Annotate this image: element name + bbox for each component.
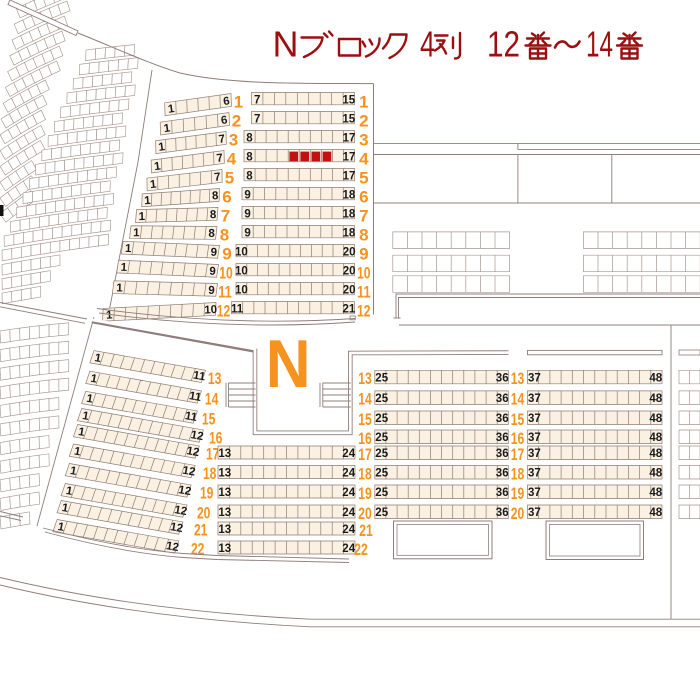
svg-text:1: 1 <box>359 93 368 112</box>
svg-text:36: 36 <box>496 448 509 460</box>
svg-text:12: 12 <box>357 302 371 321</box>
svg-text:13: 13 <box>218 524 231 536</box>
svg-text:14: 14 <box>205 389 219 408</box>
svg-text:17: 17 <box>358 445 372 464</box>
svg-text:18: 18 <box>358 464 372 483</box>
svg-text:17: 17 <box>343 151 356 163</box>
svg-text:8: 8 <box>246 170 253 182</box>
svg-text:15: 15 <box>202 410 216 429</box>
svg-text:6: 6 <box>359 188 368 207</box>
svg-text:11: 11 <box>218 283 232 302</box>
svg-text:21: 21 <box>359 521 373 540</box>
svg-text:9: 9 <box>244 189 250 201</box>
svg-text:N: N <box>266 325 311 401</box>
svg-text:5: 5 <box>359 169 368 188</box>
svg-text:8: 8 <box>246 132 253 144</box>
svg-text:1: 1 <box>116 282 123 294</box>
svg-text:10: 10 <box>219 264 233 283</box>
svg-text:17: 17 <box>343 132 356 144</box>
svg-text:9: 9 <box>359 245 368 264</box>
svg-text:48: 48 <box>649 393 662 405</box>
svg-text:25: 25 <box>375 432 388 444</box>
svg-text:10: 10 <box>235 246 248 258</box>
svg-text:2: 2 <box>232 112 241 131</box>
svg-text:36: 36 <box>496 432 509 444</box>
svg-text:12: 12 <box>182 465 197 479</box>
svg-text:24: 24 <box>342 448 355 460</box>
svg-text:12: 12 <box>190 429 205 443</box>
svg-text:12: 12 <box>169 521 184 535</box>
svg-text:36: 36 <box>496 487 509 499</box>
svg-text:48: 48 <box>649 372 662 384</box>
svg-text:20: 20 <box>343 246 356 258</box>
svg-text:18: 18 <box>343 208 356 220</box>
svg-text:15: 15 <box>342 94 355 106</box>
svg-text:13: 13 <box>358 369 372 388</box>
svg-text:20: 20 <box>343 265 356 277</box>
svg-text:4: 4 <box>359 150 369 169</box>
svg-text:8: 8 <box>246 151 253 163</box>
svg-text:19: 19 <box>511 484 525 503</box>
svg-text:12: 12 <box>177 484 192 498</box>
svg-text:8: 8 <box>210 209 217 221</box>
svg-text:25: 25 <box>375 393 388 405</box>
svg-text:37: 37 <box>528 372 541 384</box>
svg-text:1: 1 <box>138 211 145 223</box>
svg-text:15: 15 <box>342 113 355 125</box>
svg-text:15: 15 <box>511 410 525 429</box>
svg-text:48: 48 <box>649 468 662 480</box>
svg-text:12: 12 <box>186 445 201 459</box>
svg-text:14: 14 <box>586 24 613 65</box>
svg-text:17: 17 <box>343 170 356 182</box>
svg-text:9: 9 <box>209 266 216 278</box>
svg-text:13: 13 <box>208 369 222 388</box>
svg-text:11: 11 <box>357 283 371 302</box>
svg-text:25: 25 <box>375 487 388 499</box>
svg-text:8: 8 <box>359 226 368 245</box>
svg-text:12: 12 <box>173 504 188 518</box>
svg-text:37: 37 <box>528 432 541 444</box>
svg-text:18: 18 <box>511 464 525 483</box>
svg-text:10: 10 <box>235 265 248 277</box>
svg-text:1: 1 <box>120 262 128 274</box>
svg-text:22: 22 <box>191 540 205 559</box>
svg-text:13: 13 <box>511 369 525 388</box>
svg-text:7: 7 <box>214 171 222 184</box>
svg-text:4: 4 <box>227 150 237 169</box>
svg-text:8: 8 <box>220 226 229 245</box>
svg-text:7: 7 <box>359 207 368 226</box>
svg-text:37: 37 <box>528 393 541 405</box>
svg-text:7: 7 <box>254 113 260 125</box>
svg-text:10: 10 <box>357 264 371 283</box>
svg-text:1: 1 <box>234 93 243 112</box>
svg-text:36: 36 <box>496 507 509 519</box>
svg-text:17: 17 <box>511 445 525 464</box>
svg-text:24: 24 <box>342 487 355 499</box>
svg-text:14: 14 <box>358 390 372 409</box>
svg-text:48: 48 <box>649 413 662 425</box>
svg-text:24: 24 <box>342 468 355 480</box>
svg-text:15: 15 <box>358 410 372 429</box>
svg-text:24: 24 <box>342 507 355 519</box>
svg-text:9: 9 <box>244 208 250 220</box>
svg-text:11: 11 <box>231 303 244 315</box>
svg-text:21: 21 <box>194 521 208 540</box>
svg-text:13: 13 <box>218 468 231 480</box>
svg-text:9: 9 <box>244 227 250 239</box>
svg-text:37: 37 <box>528 468 541 480</box>
svg-text:13: 13 <box>218 448 231 460</box>
svg-text:36: 36 <box>496 413 509 425</box>
svg-text:25: 25 <box>375 372 388 384</box>
svg-text:37: 37 <box>528 487 541 499</box>
svg-text:13: 13 <box>218 487 231 499</box>
svg-text:18: 18 <box>343 227 356 239</box>
svg-text:12: 12 <box>487 24 520 65</box>
svg-text:25: 25 <box>375 448 388 460</box>
svg-text:48: 48 <box>649 432 662 444</box>
svg-text:3: 3 <box>229 131 238 150</box>
svg-text:21: 21 <box>343 303 356 315</box>
svg-text:10: 10 <box>235 284 248 296</box>
svg-text:48: 48 <box>649 507 662 519</box>
svg-text:19: 19 <box>200 484 214 503</box>
svg-text:7: 7 <box>254 94 260 106</box>
svg-text:37: 37 <box>528 448 541 460</box>
svg-text:37: 37 <box>528 413 541 425</box>
svg-text:36: 36 <box>496 468 509 480</box>
svg-text:48: 48 <box>649 487 662 499</box>
svg-text:24: 24 <box>342 524 355 536</box>
svg-text:14: 14 <box>511 390 525 409</box>
svg-text:22: 22 <box>354 540 368 559</box>
svg-text:1: 1 <box>133 227 140 239</box>
svg-text:48: 48 <box>649 448 662 460</box>
svg-text:25: 25 <box>375 507 388 519</box>
svg-text:7: 7 <box>221 207 230 226</box>
svg-text:13: 13 <box>218 507 231 519</box>
svg-text:18: 18 <box>203 464 217 483</box>
svg-text:2: 2 <box>359 112 368 131</box>
svg-text:25: 25 <box>375 468 388 480</box>
svg-text:N: N <box>273 24 299 65</box>
svg-text:10: 10 <box>204 304 217 317</box>
svg-text:12: 12 <box>217 302 231 321</box>
svg-text:13: 13 <box>218 543 231 555</box>
svg-text:19: 19 <box>358 484 372 503</box>
svg-text:3: 3 <box>359 131 368 150</box>
svg-text:1: 1 <box>106 309 114 321</box>
svg-text:5: 5 <box>225 169 234 188</box>
svg-text:20: 20 <box>511 504 525 523</box>
svg-text:20: 20 <box>343 284 356 296</box>
svg-text:36: 36 <box>496 372 509 384</box>
svg-text:25: 25 <box>375 413 388 425</box>
svg-text:4: 4 <box>420 24 435 65</box>
svg-text:9: 9 <box>222 245 231 264</box>
svg-text:9: 9 <box>208 285 215 297</box>
svg-text:8: 8 <box>208 228 215 240</box>
svg-text:18: 18 <box>343 189 356 201</box>
svg-text:9: 9 <box>210 247 217 259</box>
svg-text:36: 36 <box>496 393 509 405</box>
svg-text:1: 1 <box>125 243 133 255</box>
svg-text:37: 37 <box>528 507 541 519</box>
svg-text:6: 6 <box>222 188 231 207</box>
